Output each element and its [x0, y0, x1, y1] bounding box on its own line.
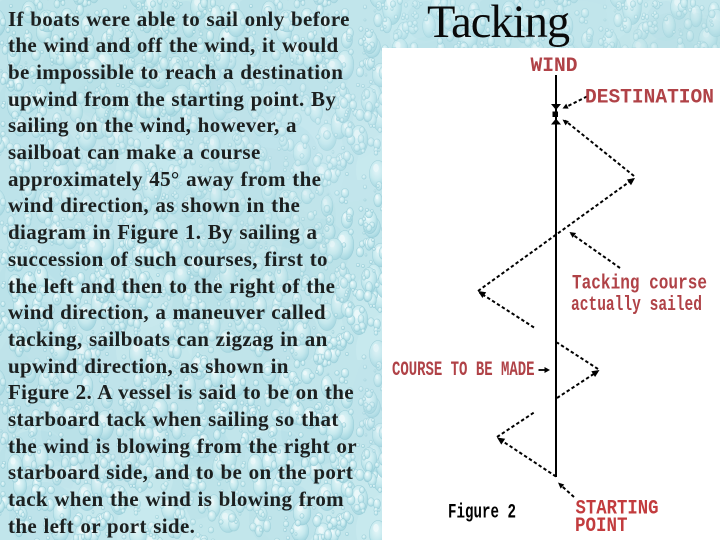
svg-text:COURSE TO BE MADE: COURSE TO BE MADE	[392, 359, 535, 382]
svg-text:WIND: WIND	[531, 55, 578, 78]
svg-text:actually sailed: actually sailed	[571, 294, 702, 317]
svg-text:POINT: POINT	[575, 515, 628, 538]
svg-text:DESTINATION: DESTINATION	[585, 87, 714, 110]
svg-text:Tacking course: Tacking course	[572, 273, 707, 296]
svg-text:Figure 2: Figure 2	[448, 502, 516, 525]
